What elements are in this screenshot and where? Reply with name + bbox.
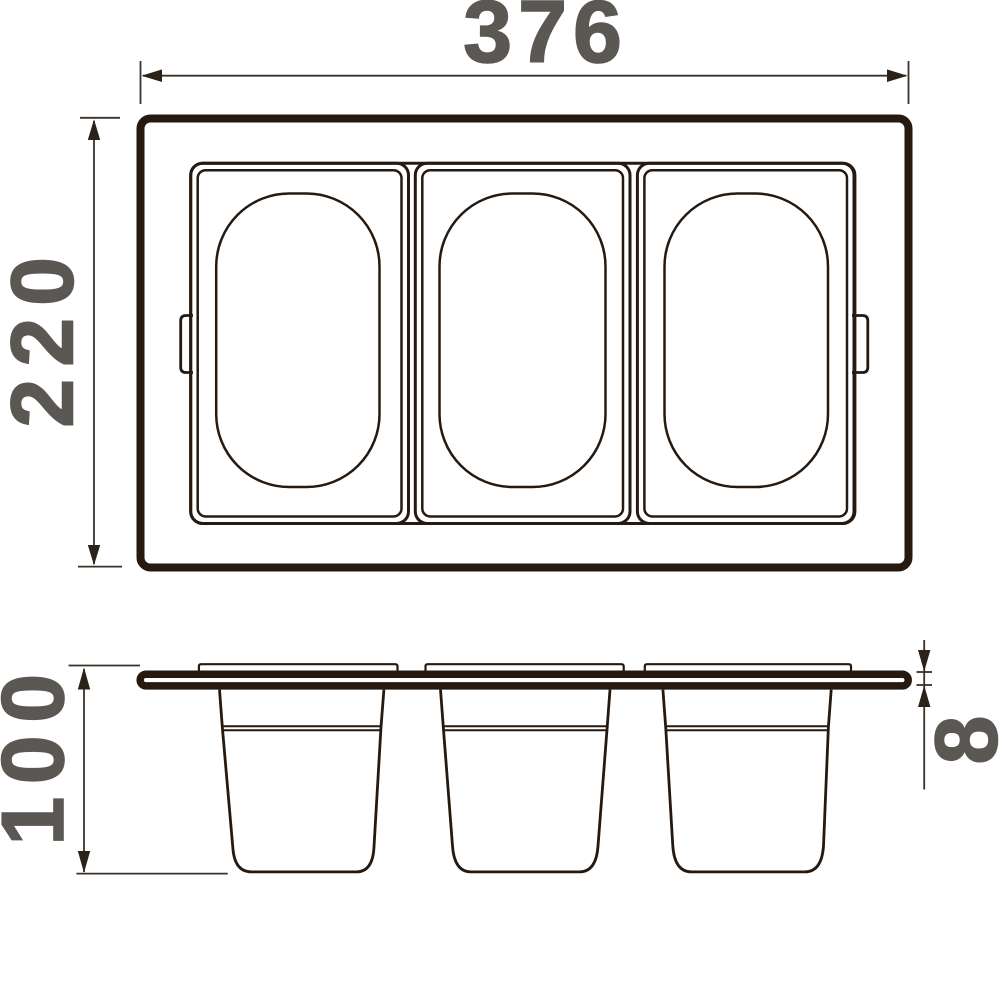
svg-text:100: 100 [0,661,82,845]
svg-text:220: 220 [0,245,92,428]
svg-text:8: 8 [917,716,1000,765]
svg-text:376: 376 [463,0,628,81]
